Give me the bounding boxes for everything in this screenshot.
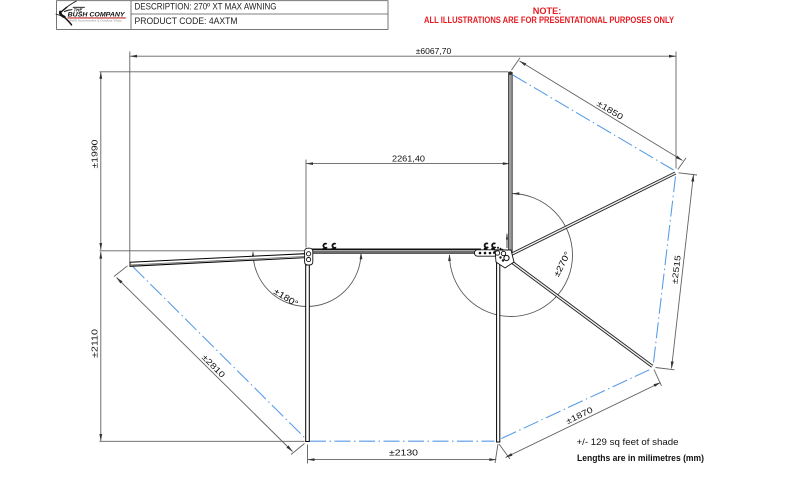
- svg-text:±6067,70: ±6067,70: [416, 46, 452, 56]
- svg-text:±2110: ±2110: [89, 329, 99, 358]
- svg-text:BUSH COMPANY: BUSH COMPANY: [68, 11, 126, 18]
- svg-text:+/- 129 sq feet of shade: +/- 129 sq feet of shade: [577, 437, 679, 447]
- svg-text:±2130: ±2130: [389, 448, 418, 458]
- svg-text:2261,40: 2261,40: [392, 153, 425, 163]
- svg-text:ALL ILLUSTRATIONS ARE FOR PRES: ALL ILLUSTRATIONS ARE FOR PRESENTATIONAL…: [424, 15, 674, 25]
- svg-text:4WD Accessories & Outdoor Shop: 4WD Accessories & Outdoor Shop: [70, 19, 122, 23]
- svg-text:PRODUCT CODE: 4AXTM: PRODUCT CODE: 4AXTM: [135, 16, 238, 26]
- svg-text:±2515: ±2515: [669, 254, 683, 284]
- svg-text:Lengths are in milimetres (mm): Lengths are in milimetres (mm): [577, 453, 704, 463]
- svg-text:±1990: ±1990: [89, 139, 99, 168]
- svg-text:DESCRIPTION: 270º XT MAX AWNIN: DESCRIPTION: 270º XT MAX AWNING: [135, 2, 277, 12]
